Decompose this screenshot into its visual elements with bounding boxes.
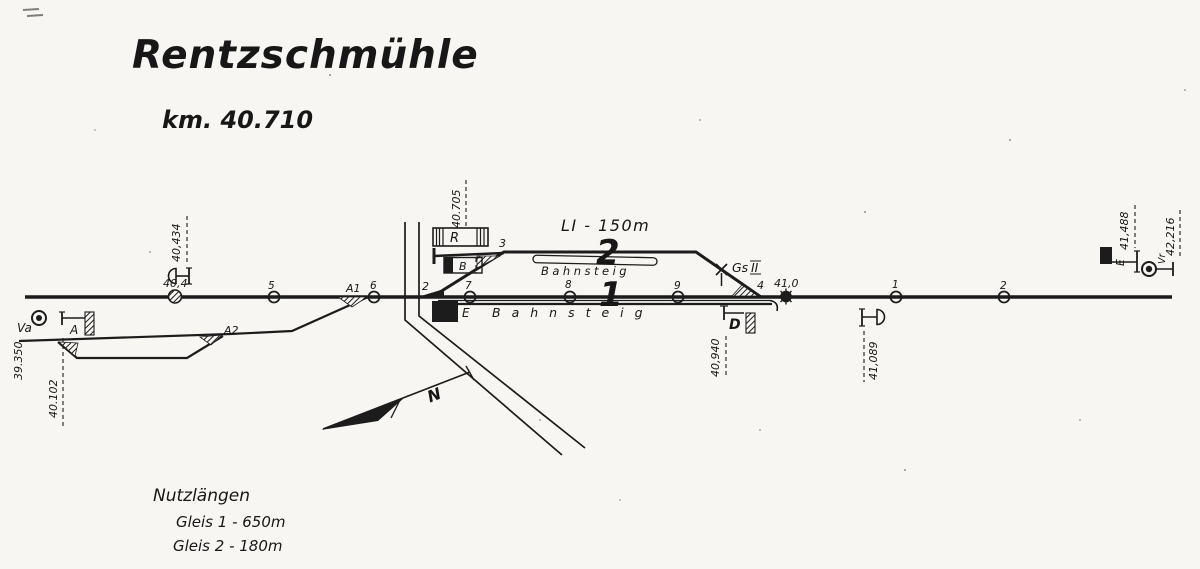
building-r-outline [433, 228, 488, 246]
station-title: Rentzschmühle [132, 33, 479, 78]
legend-heading: Nutzlängen [153, 486, 250, 506]
speckle [1079, 419, 1081, 421]
signal-km-label: 42,216 [1164, 218, 1177, 257]
wedge-switch-a2 [200, 335, 222, 345]
speckle [1184, 89, 1186, 91]
km-marker-41-0: 41,0 [774, 277, 799, 305]
km-marker-label: 41,0 [774, 277, 799, 290]
main-platform-end-hook [770, 301, 777, 312]
wedge-loop-start [59, 342, 78, 356]
signal-disc-center [1146, 266, 1152, 272]
switch-2-label: 2 [422, 280, 429, 293]
signal-d-label: D [729, 317, 741, 333]
signal-flag-icon [746, 313, 755, 333]
loading-stub-track [434, 253, 504, 256]
building-b-label: B [459, 260, 467, 273]
main-signal-e: E 41,488 [1100, 205, 1140, 272]
branch-km-label: 39.350 [12, 342, 25, 381]
speckle [1009, 139, 1011, 141]
speckle [619, 499, 621, 501]
signal-km-label: 41,089 [867, 342, 880, 381]
wedge-switch-a1 [338, 297, 367, 307]
signal-flag-icon [1100, 247, 1112, 264]
north-arrow: N [321, 366, 474, 430]
marker-label-7: 7 [465, 280, 472, 292]
useful-lengths-legend: Nutzlängen Gleis 1 - 650m Gleis 2 - 180m [153, 486, 286, 555]
switch-a1-label: A1 [345, 282, 361, 295]
distant-signal-right: 41,089 [859, 309, 885, 382]
track-2-number: 2 [596, 233, 620, 273]
track-1-number: 1 [599, 275, 623, 315]
north-arrow-shaft [323, 372, 470, 429]
speckle [904, 469, 906, 471]
km-note-40-705: 40.705 [450, 180, 466, 229]
signal-disc-center [36, 315, 42, 321]
main-signal-d: D 40,940 [709, 306, 755, 377]
speckle [864, 211, 866, 213]
km-stone-icon [169, 290, 182, 303]
switch-3-label: 3 [499, 237, 506, 250]
km-note-label: 40.705 [450, 190, 463, 229]
building-r-label: R [450, 231, 459, 246]
speckle [759, 429, 761, 431]
track-plan-drawing: Rentzschmühle km. 40.710 Bahnsteig Bahns… [0, 0, 1200, 569]
corner-mark [23, 9, 39, 10]
signal-km-label: 40,434 [170, 224, 183, 263]
signal-a-label: A [69, 323, 78, 337]
distant-signal-left: 40,434 [169, 216, 193, 284]
speckle [94, 129, 96, 131]
paper-speckles [94, 74, 1186, 501]
marker-label-9: 9 [674, 280, 681, 292]
km-stone-spokes [778, 289, 794, 305]
building-r-goods-shed: R [433, 228, 488, 246]
signal-e-label: E [1114, 259, 1127, 266]
marker-label-8: 8 [565, 279, 572, 291]
signal-va-label: Va [17, 321, 32, 335]
switch-a2-label: A2 [223, 324, 239, 337]
corner-mark [27, 15, 43, 16]
main-platform-label: Bahnsteig [492, 305, 654, 320]
marker-label-5: 5 [268, 280, 275, 292]
legend-gleis2: Gleis 2 - 180m [173, 537, 283, 555]
marker-label-2: 2 [1000, 280, 1007, 292]
building-e-block [432, 301, 458, 322]
marker-label-6: 6 [370, 280, 377, 292]
loading-length-label: LI - 150m [561, 216, 650, 235]
distant-signal-vr: Vr 42,216 [1142, 210, 1180, 276]
main-signal-a: A 40.102 [47, 312, 94, 428]
signal-km-label: 40,940 [709, 339, 722, 378]
signal-km-label: 41,488 [1118, 212, 1131, 251]
track-plan-sheet: Rentzschmühle km. 40.710 Bahnsteig Bahns… [0, 0, 1200, 569]
line-markers: 5 6 7 8 9 1 2 40,4 41,0 40.705 [163, 180, 1010, 305]
distant-signal-disc-icon [877, 310, 885, 325]
signal-gs-label: Gs [732, 260, 749, 275]
signal-flag-icon [85, 312, 94, 335]
speckle [699, 119, 701, 121]
buildings: R B E [432, 228, 488, 322]
legend-gleis1: Gleis 1 - 650m [176, 513, 286, 531]
building-b-solid-part [444, 258, 453, 274]
signal-gs-numeral: II [751, 260, 759, 275]
speckle [149, 251, 151, 253]
switch-4-label: 4 [757, 279, 764, 292]
speckle [539, 419, 541, 421]
north-label: N [425, 384, 445, 407]
distant-signal-va: Va [17, 311, 46, 335]
marker-label-1: 1 [892, 279, 899, 291]
station-km: km. 40.710 [162, 106, 313, 134]
building-e-label: E [462, 306, 470, 320]
building-r-end-stripes [437, 228, 485, 246]
signal-km-label: 40.102 [47, 380, 60, 419]
